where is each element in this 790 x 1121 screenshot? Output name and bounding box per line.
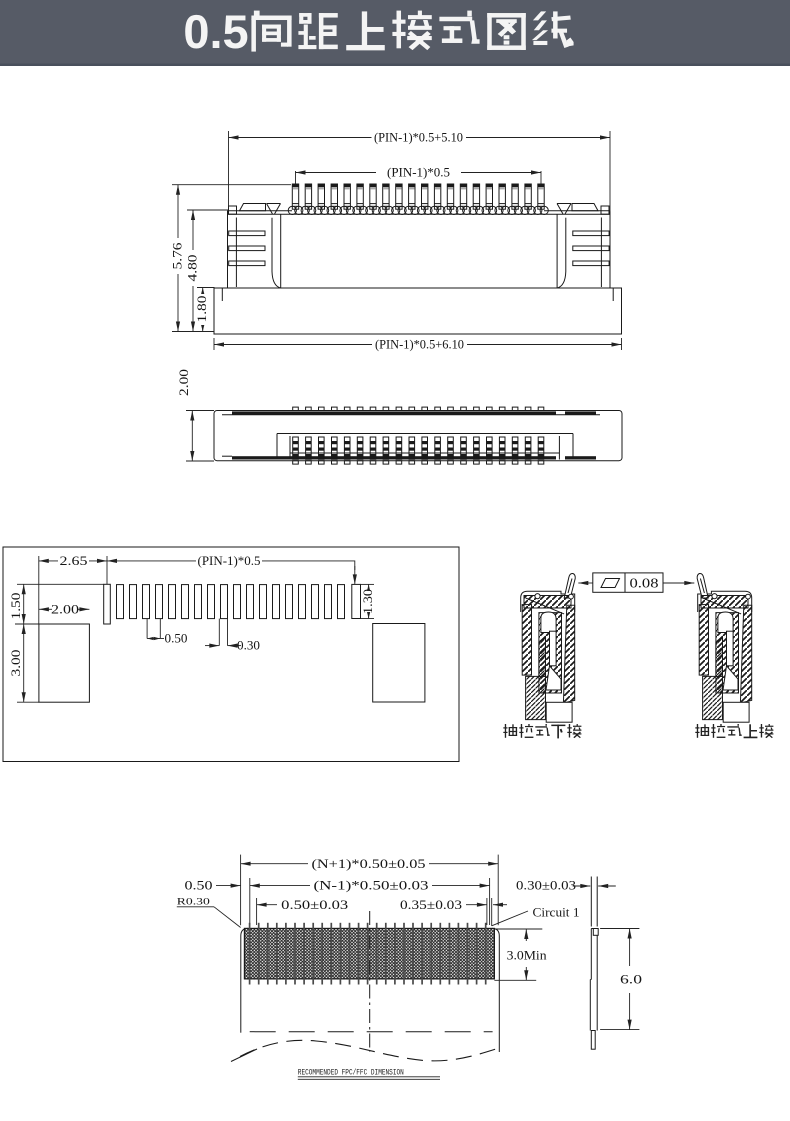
svg-text:2.65: 2.65 [60, 554, 88, 568]
svg-text:5.76: 5.76 [171, 243, 185, 270]
svg-text:(PIN-1)*0.5+6.10: (PIN-1)*0.5+6.10 [375, 338, 464, 352]
svg-text:4.80: 4.80 [186, 255, 200, 282]
svg-text:6.0: 6.0 [620, 972, 642, 986]
svg-text:0.50±0.03: 0.50±0.03 [281, 898, 348, 912]
svg-text:0.08: 0.08 [630, 576, 659, 591]
svg-text:3.0Min: 3.0Min [507, 949, 548, 963]
svg-text:(PIN-1)*0.5: (PIN-1)*0.5 [198, 554, 261, 568]
svg-text:2.00: 2.00 [51, 602, 79, 616]
svg-text:(PIN-1)*0.5+5.10: (PIN-1)*0.5+5.10 [374, 131, 463, 145]
svg-text:1.80: 1.80 [195, 296, 209, 323]
svg-text:1.30: 1.30 [361, 589, 375, 614]
svg-text:R0.30: R0.30 [177, 898, 210, 908]
svg-text:0.30±0.03: 0.30±0.03 [516, 879, 576, 893]
svg-text:2.00: 2.00 [177, 369, 191, 396]
svg-text:RECOMMENDED FPC/FFC DIMENSION: RECOMMENDED FPC/FFC DIMENSION [298, 1069, 404, 1078]
svg-text:Circuit 1: Circuit 1 [533, 906, 580, 920]
svg-text:(PIN-1)*0.5: (PIN-1)*0.5 [387, 166, 450, 180]
svg-text:0.35±0.03: 0.35±0.03 [400, 898, 462, 912]
svg-text:3.00: 3.00 [9, 650, 23, 677]
svg-text:0.5: 0.5 [183, 5, 248, 58]
svg-text:0.30: 0.30 [237, 639, 260, 653]
svg-text:(N+1)*0.50±0.05: (N+1)*0.50±0.05 [312, 857, 426, 871]
svg-text:(N-1)*0.50±0.03: (N-1)*0.50±0.03 [314, 879, 429, 893]
svg-text:0.50: 0.50 [185, 879, 213, 893]
svg-text:1.50: 1.50 [9, 593, 23, 620]
svg-text:0.50: 0.50 [165, 632, 188, 646]
